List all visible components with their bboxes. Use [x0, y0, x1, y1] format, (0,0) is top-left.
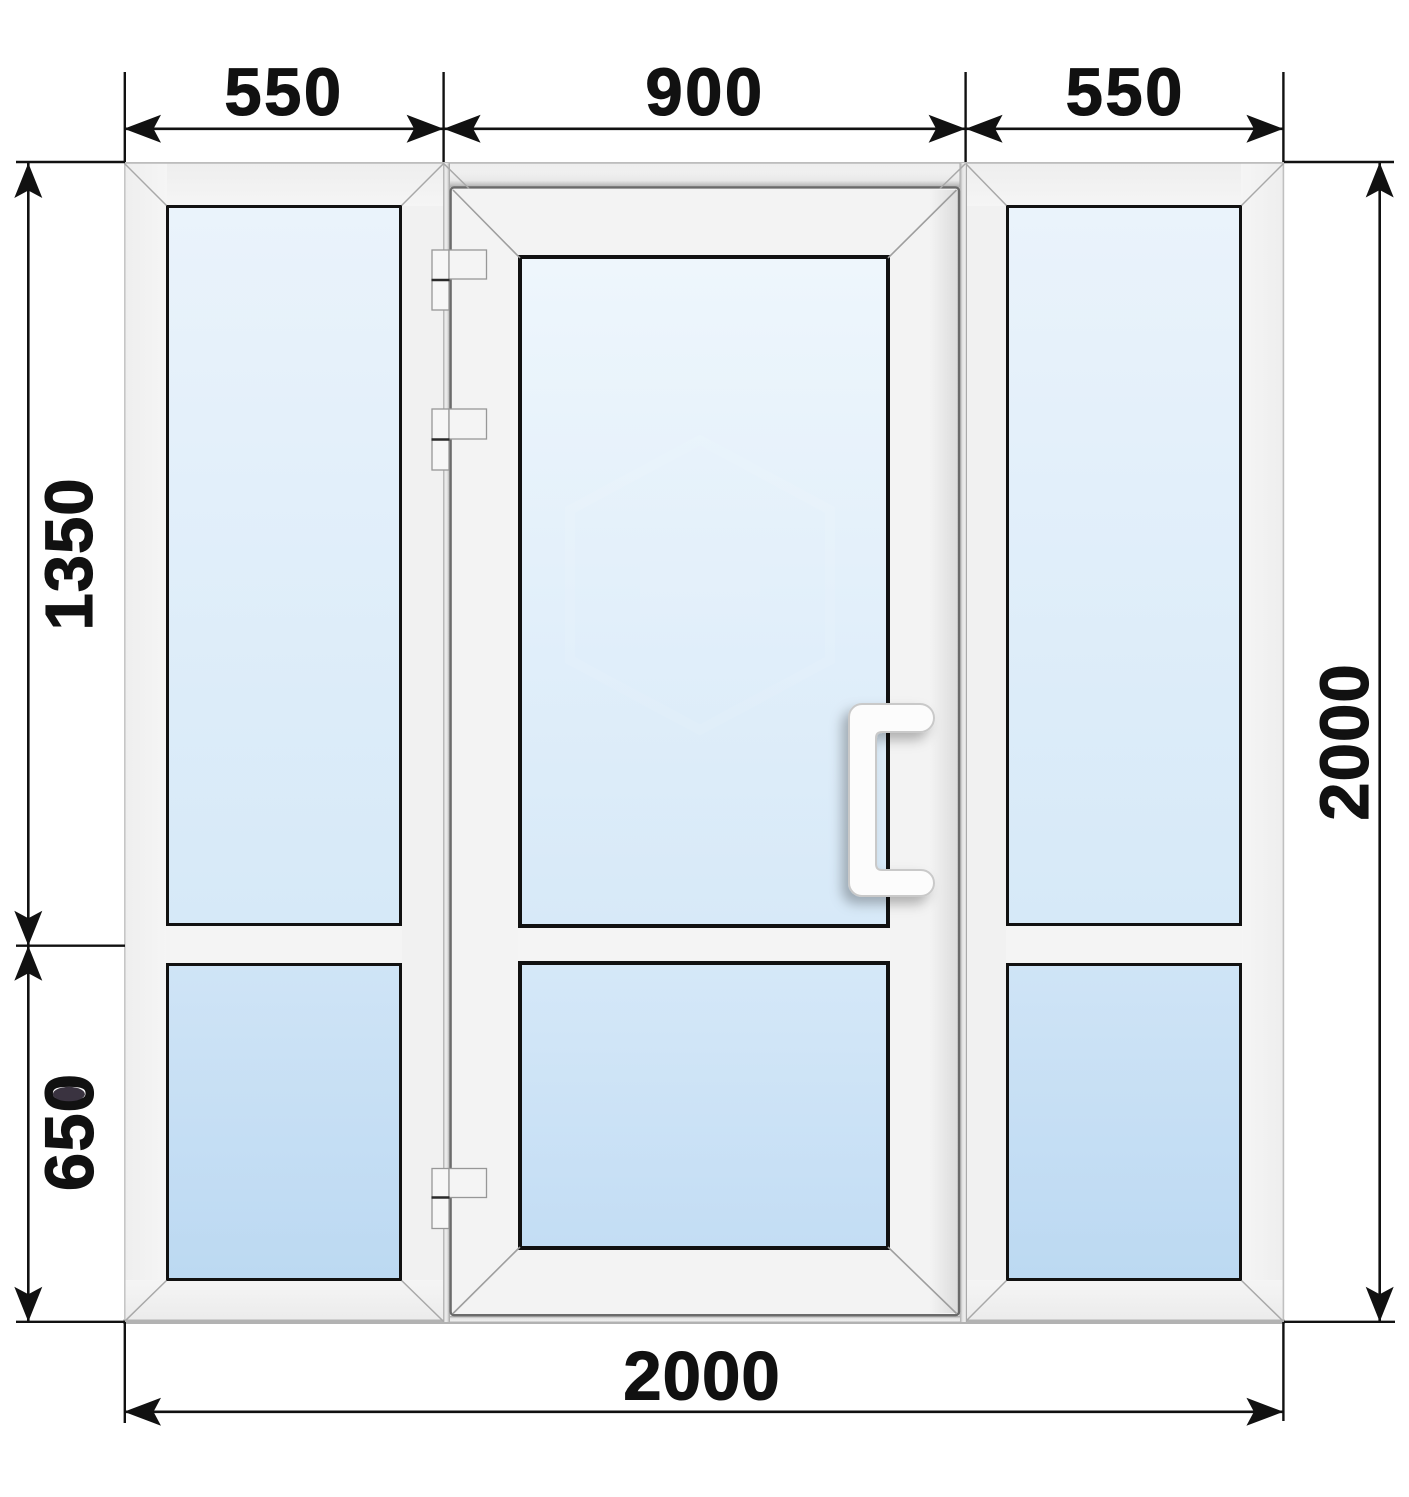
svg-text:550: 550 — [1066, 55, 1185, 130]
svg-text:2000: 2000 — [1306, 663, 1383, 821]
svg-text:2000: 2000 — [623, 1338, 781, 1415]
svg-text:900: 900 — [645, 55, 764, 130]
svg-text:1350: 1350 — [32, 477, 107, 630]
svg-text:550: 550 — [224, 55, 343, 130]
